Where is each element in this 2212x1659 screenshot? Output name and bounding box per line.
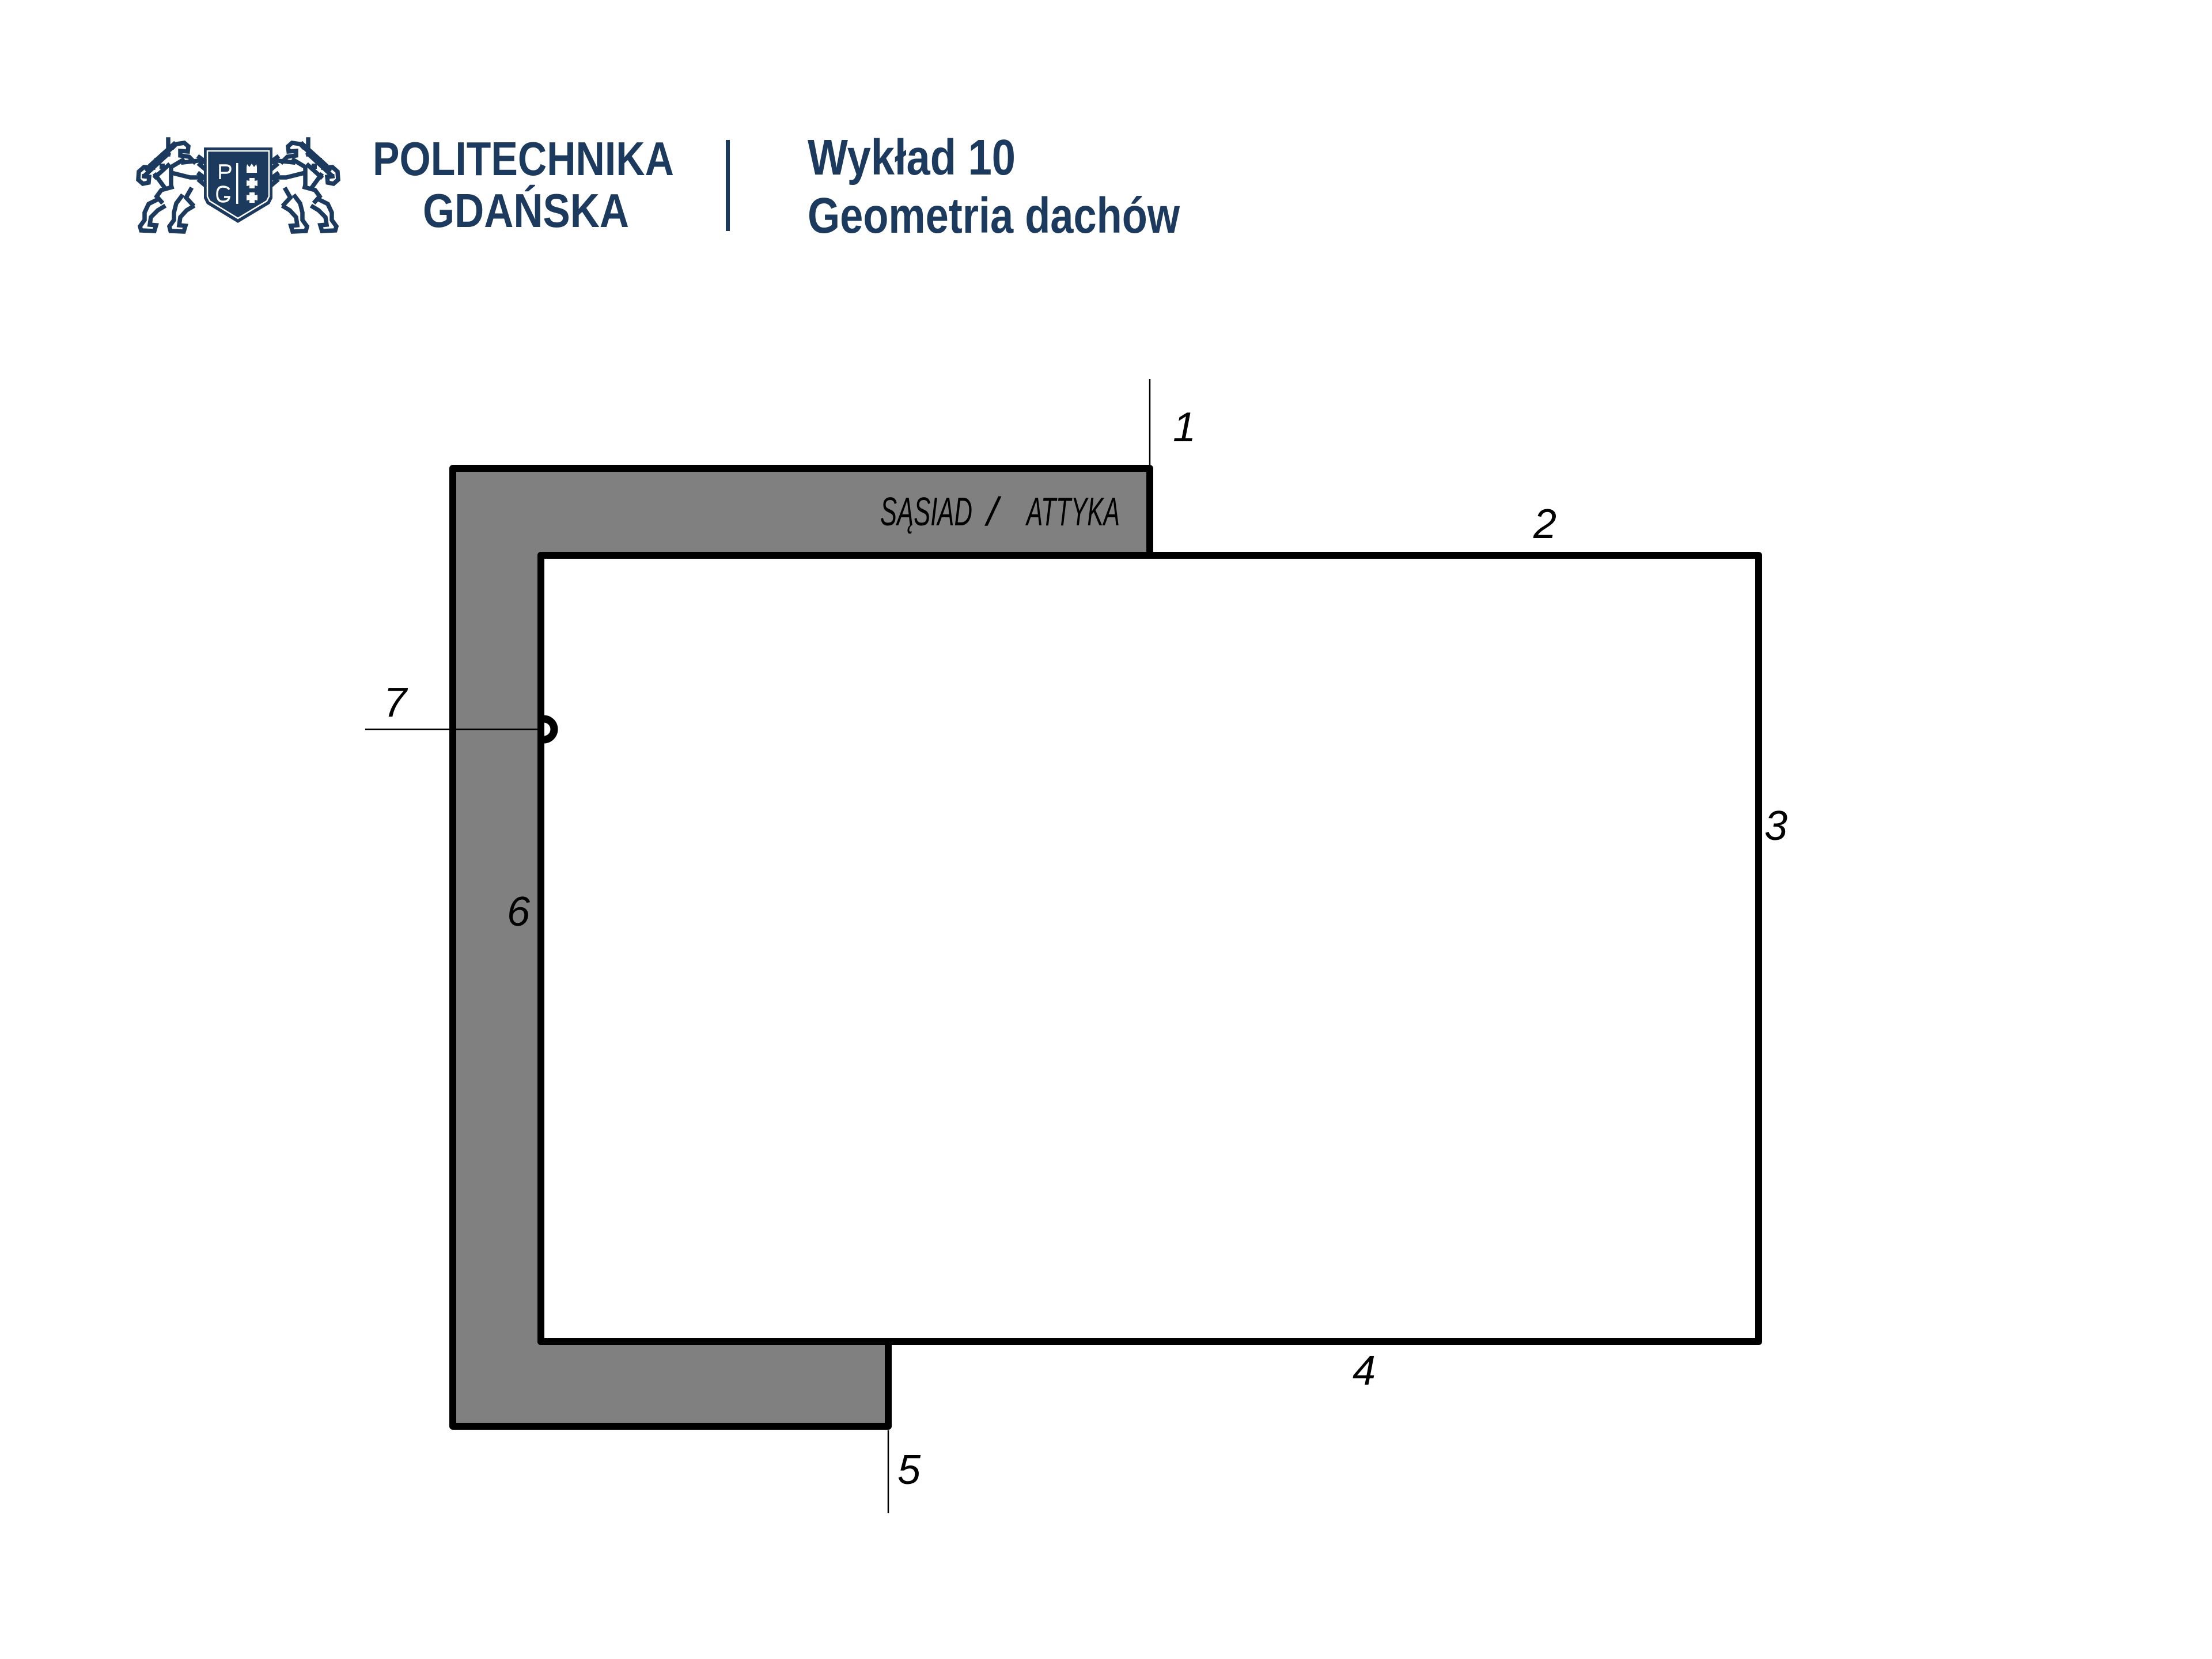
svg-text:GDAŃSKA: GDAŃSKA [423, 184, 629, 237]
svg-text:POLITECHNIKA: POLITECHNIKA [373, 132, 674, 185]
svg-text:SĄSIAD: SĄSIAD [880, 489, 972, 534]
svg-text:2: 2 [1533, 501, 1556, 547]
svg-text:4: 4 [1353, 1348, 1376, 1394]
svg-text:1: 1 [1173, 404, 1196, 450]
svg-text:ATTYKA: ATTYKA [1025, 489, 1120, 534]
svg-text:Wykład 10: Wykład 10 [808, 130, 1016, 185]
svg-text:3: 3 [1764, 803, 1787, 849]
svg-text:6: 6 [507, 889, 531, 935]
svg-text:7: 7 [384, 680, 408, 726]
svg-text:Geometria dachów: Geometria dachów [808, 188, 1180, 244]
svg-text:5: 5 [897, 1447, 921, 1493]
